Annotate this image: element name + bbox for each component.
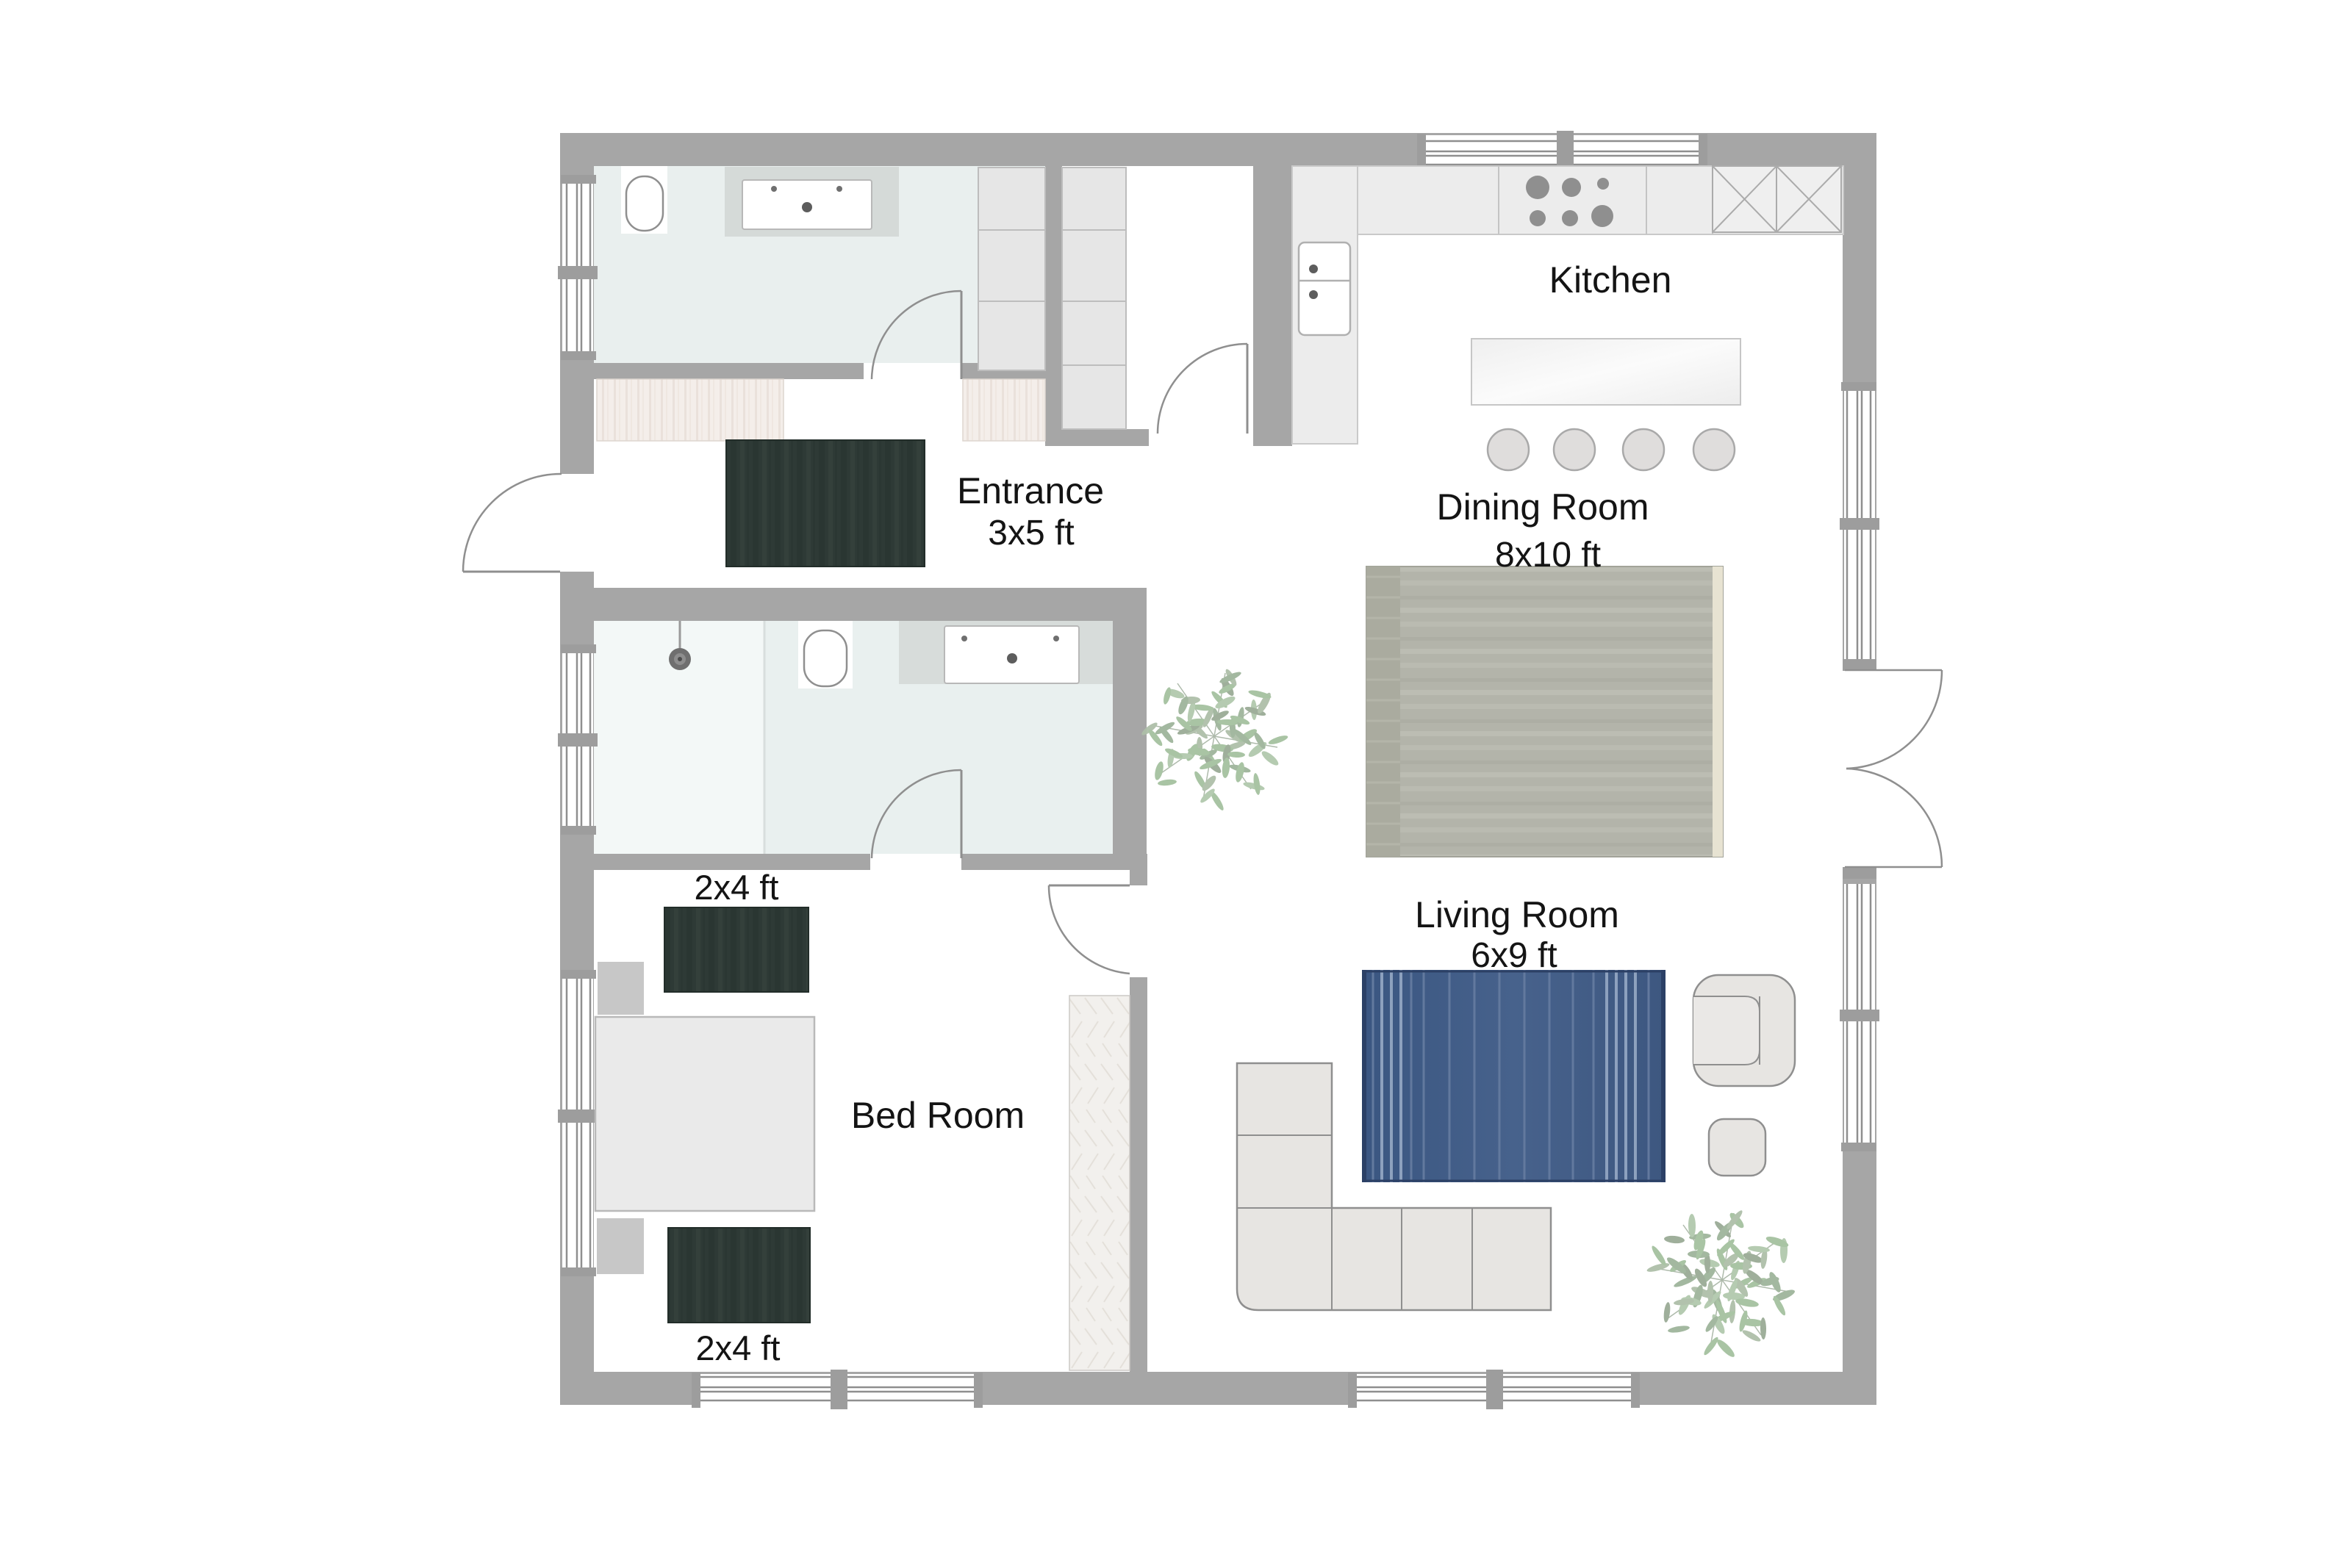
svg-text:Entrance: Entrance xyxy=(957,470,1104,511)
svg-text:8x10 ft: 8x10 ft xyxy=(1495,536,1601,575)
svg-text:Dining Room: Dining Room xyxy=(1436,486,1649,528)
svg-text:3x5 ft: 3x5 ft xyxy=(988,514,1074,553)
svg-text:2x4 ft: 2x4 ft xyxy=(695,868,779,907)
svg-text:6x9 ft: 6x9 ft xyxy=(1471,936,1557,975)
svg-text:Bed Room: Bed Room xyxy=(851,1095,1025,1136)
svg-text:2x4 ft: 2x4 ft xyxy=(696,1328,781,1367)
svg-text:Living Room: Living Room xyxy=(1415,894,1619,935)
svg-text:Kitchen: Kitchen xyxy=(1549,259,1672,301)
